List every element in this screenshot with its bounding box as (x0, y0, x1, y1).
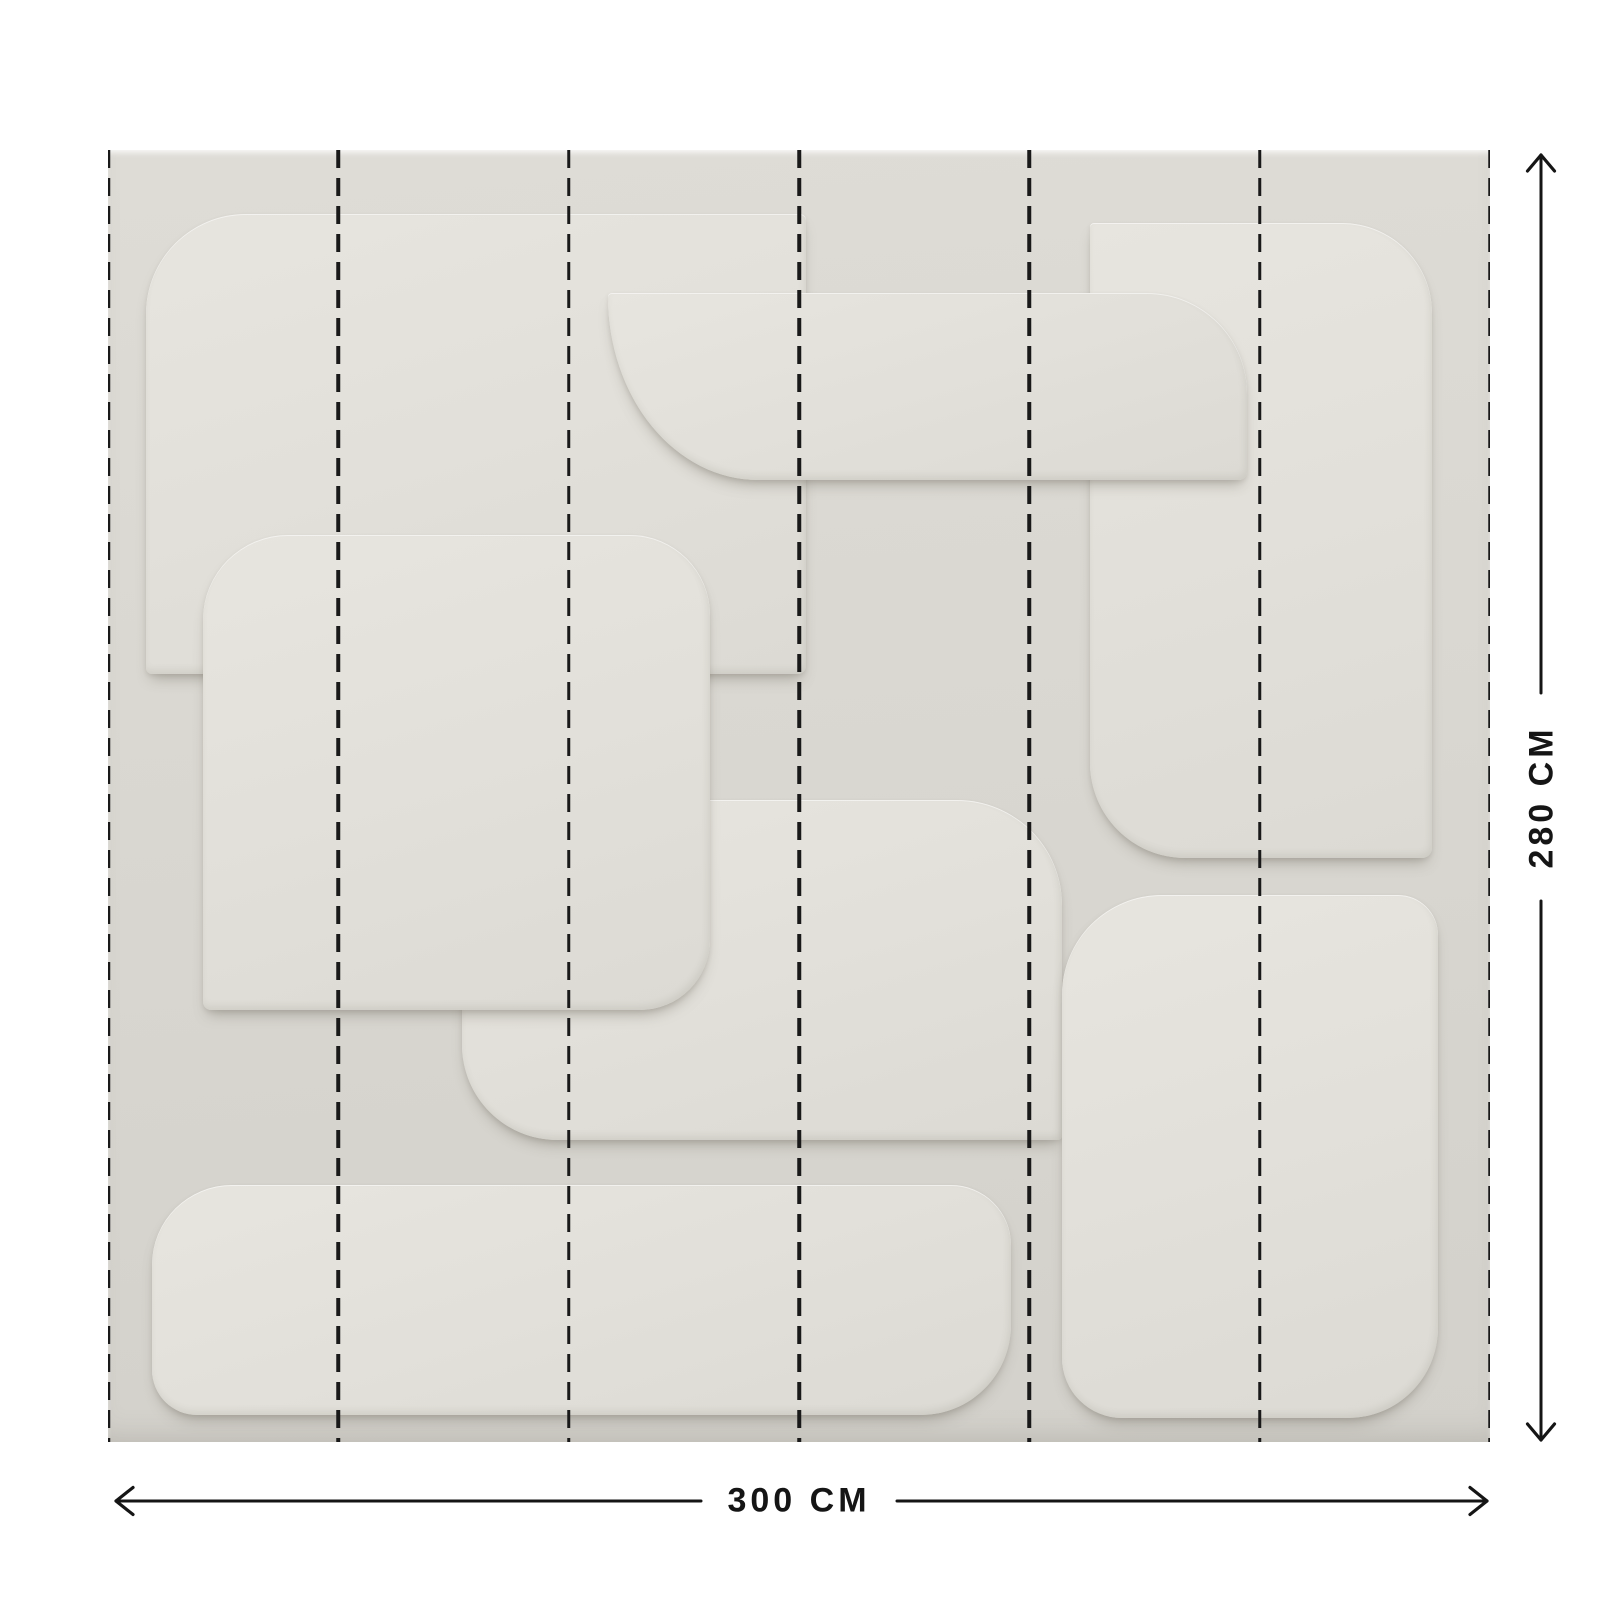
relief-shape-bottom-right-square (1062, 895, 1438, 1418)
relief-shape-bottom-band (152, 1185, 1011, 1415)
height-arrow-bottom-head-icon (1528, 1424, 1555, 1440)
wallpaper-dimension-diagram: 300 CM 280 CM (0, 0, 1600, 1600)
panel-seam-line (797, 150, 801, 1442)
height-arrow-top-head-icon (1528, 155, 1555, 171)
panel-seam-line (1028, 150, 1032, 1442)
panel-seam-line (1488, 150, 1490, 1442)
panel-seam-line (108, 150, 110, 1442)
relief-shape-top-bar (608, 293, 1247, 480)
relief-shape-left-square (203, 535, 710, 1010)
width-arrow-left-head-icon (116, 1488, 133, 1515)
panel-seam-line (567, 150, 571, 1442)
mural-artwork-preview (108, 150, 1490, 1442)
height-dimension-label: 280 CM (1523, 725, 1562, 868)
panel-seam-line (1258, 150, 1262, 1442)
width-arrow-right-head-icon (1470, 1488, 1487, 1515)
width-dimension-label: 300 CM (727, 1482, 870, 1521)
panel-seam-line (337, 150, 341, 1442)
